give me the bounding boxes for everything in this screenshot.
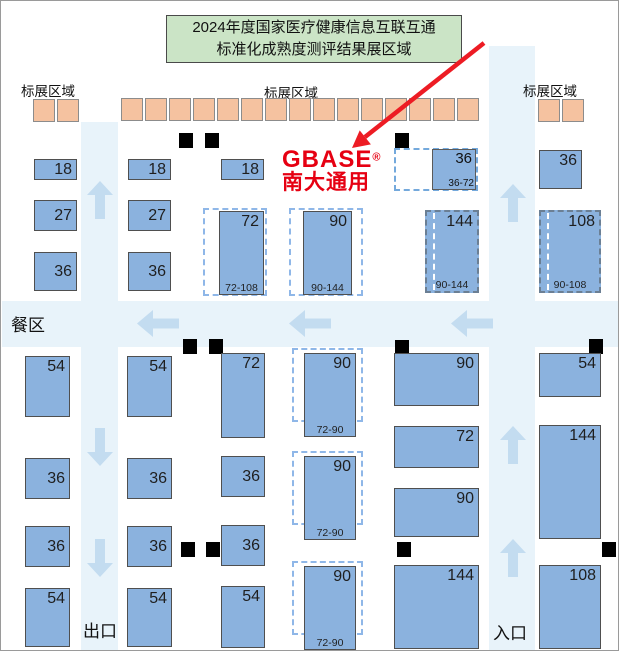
booth-90: 9090-144 <box>303 211 352 295</box>
booth-18: 18 <box>34 159 77 180</box>
standard-booth-row-middle <box>121 98 479 121</box>
up-arrow-icon <box>500 426 526 464</box>
pillar-marker <box>205 133 219 148</box>
gbase-company-text: 南大通用 <box>282 172 380 193</box>
standard-booth-row-left <box>33 99 79 122</box>
booth-36: 36 <box>25 458 70 499</box>
down-arrow-icon <box>87 428 113 466</box>
left-arrow-icon <box>451 310 493 337</box>
booth-54: 54 <box>25 588 70 647</box>
standard-booth-square <box>361 98 383 121</box>
up-arrow-icon <box>500 184 526 222</box>
standard-booth-square <box>121 98 143 121</box>
standard-booth-square <box>289 98 311 121</box>
booth-36: 36 <box>25 526 70 567</box>
booth-27: 27 <box>34 200 77 231</box>
pillar-marker <box>397 542 411 557</box>
title-box: 2024年度国家医疗健康信息互联互通 标准化成熟度测评结果展区域 <box>166 15 462 63</box>
booth-72: 72 <box>394 426 479 468</box>
standard-booth-square <box>337 98 359 121</box>
booth-36: 36 <box>128 252 171 291</box>
standard-booth-square <box>562 99 584 122</box>
standard-booth-square <box>217 98 239 121</box>
standard-booth-square <box>241 98 263 121</box>
booth-54: 54 <box>221 586 265 648</box>
pillar-marker <box>209 339 223 354</box>
booth-108: 108 <box>539 565 601 649</box>
title-line2: 标准化成熟度测评结果展区域 <box>216 39 411 61</box>
gbase-brand-text: GBASE <box>282 146 372 173</box>
standard-booth-square <box>265 98 287 121</box>
standard-booth-square <box>409 98 431 121</box>
booth-36: 36 <box>539 150 582 189</box>
title-line1: 2024年度国家医疗健康信息互联互通 <box>192 17 435 39</box>
pillar-marker <box>179 133 193 148</box>
booth-90: 9072-90 <box>304 456 356 540</box>
pillar-marker <box>589 339 603 354</box>
pillar-marker <box>602 542 616 557</box>
floor-map: 2024年度国家医疗健康信息互联互通 标准化成熟度测评结果展区域 标展区域 标展… <box>0 0 619 651</box>
exit-label: 出口 <box>83 617 117 642</box>
booth-72: 7272-108 <box>219 211 264 295</box>
booth-27: 27 <box>128 200 171 231</box>
pillar-marker <box>206 542 220 557</box>
standard-booth-square <box>57 99 79 122</box>
booth-36: 3636-72 <box>432 149 476 190</box>
booth-36-zone: 3636-72 <box>394 148 478 191</box>
booth-18: 18 <box>128 159 171 180</box>
booth-36: 36 <box>221 456 265 497</box>
booth-72: 72 <box>221 353 265 438</box>
booth-90: 90 <box>394 488 479 537</box>
standard-booth-square <box>433 98 455 121</box>
standard-area-label-right: 标展区域 <box>523 80 577 100</box>
booth-54: 54 <box>539 353 601 397</box>
up-arrow-icon <box>87 181 113 219</box>
booth-90: 9072-90 <box>304 353 356 437</box>
up-arrow-icon <box>500 539 526 577</box>
standard-booth-square <box>538 99 560 122</box>
booth-18: 18 <box>221 159 264 180</box>
gbase-logo: GBASE® 南大通用 <box>282 148 380 193</box>
standard-booth-square <box>145 98 167 121</box>
pillar-marker <box>395 133 409 148</box>
standard-booth-row-right <box>538 99 584 122</box>
standard-area-label-left: 标展区域 <box>21 80 75 100</box>
standard-booth-square <box>385 98 407 121</box>
booth-108: 10890-108 <box>539 210 601 293</box>
booth-54: 54 <box>127 356 172 417</box>
dining-area-label: 餐区 <box>11 311 45 336</box>
booth-36: 36 <box>127 526 172 567</box>
standard-booth-square <box>457 98 479 121</box>
booth-144: 144 <box>394 565 479 649</box>
standard-booth-square <box>313 98 335 121</box>
left-arrow-icon <box>289 310 331 337</box>
booth-90: 9072-90 <box>304 566 356 650</box>
entrance-label: 入口 <box>493 619 527 644</box>
booth-36: 36 <box>34 252 77 291</box>
pillar-marker <box>183 339 197 354</box>
pillar-marker <box>181 542 195 557</box>
booth-54: 54 <box>127 588 172 647</box>
booth-54: 54 <box>25 356 70 417</box>
down-arrow-icon <box>87 539 113 577</box>
booth-144: 144 <box>539 425 601 539</box>
standard-booth-square <box>33 99 55 122</box>
left-arrow-icon <box>137 310 179 337</box>
registered-mark: ® <box>372 152 380 164</box>
booth-144: 14490-144 <box>425 210 479 293</box>
standard-booth-square <box>193 98 215 121</box>
booth-36: 36 <box>127 458 172 499</box>
standard-booth-square <box>169 98 191 121</box>
booth-90: 90 <box>394 353 479 406</box>
booth-36: 36 <box>221 525 265 566</box>
